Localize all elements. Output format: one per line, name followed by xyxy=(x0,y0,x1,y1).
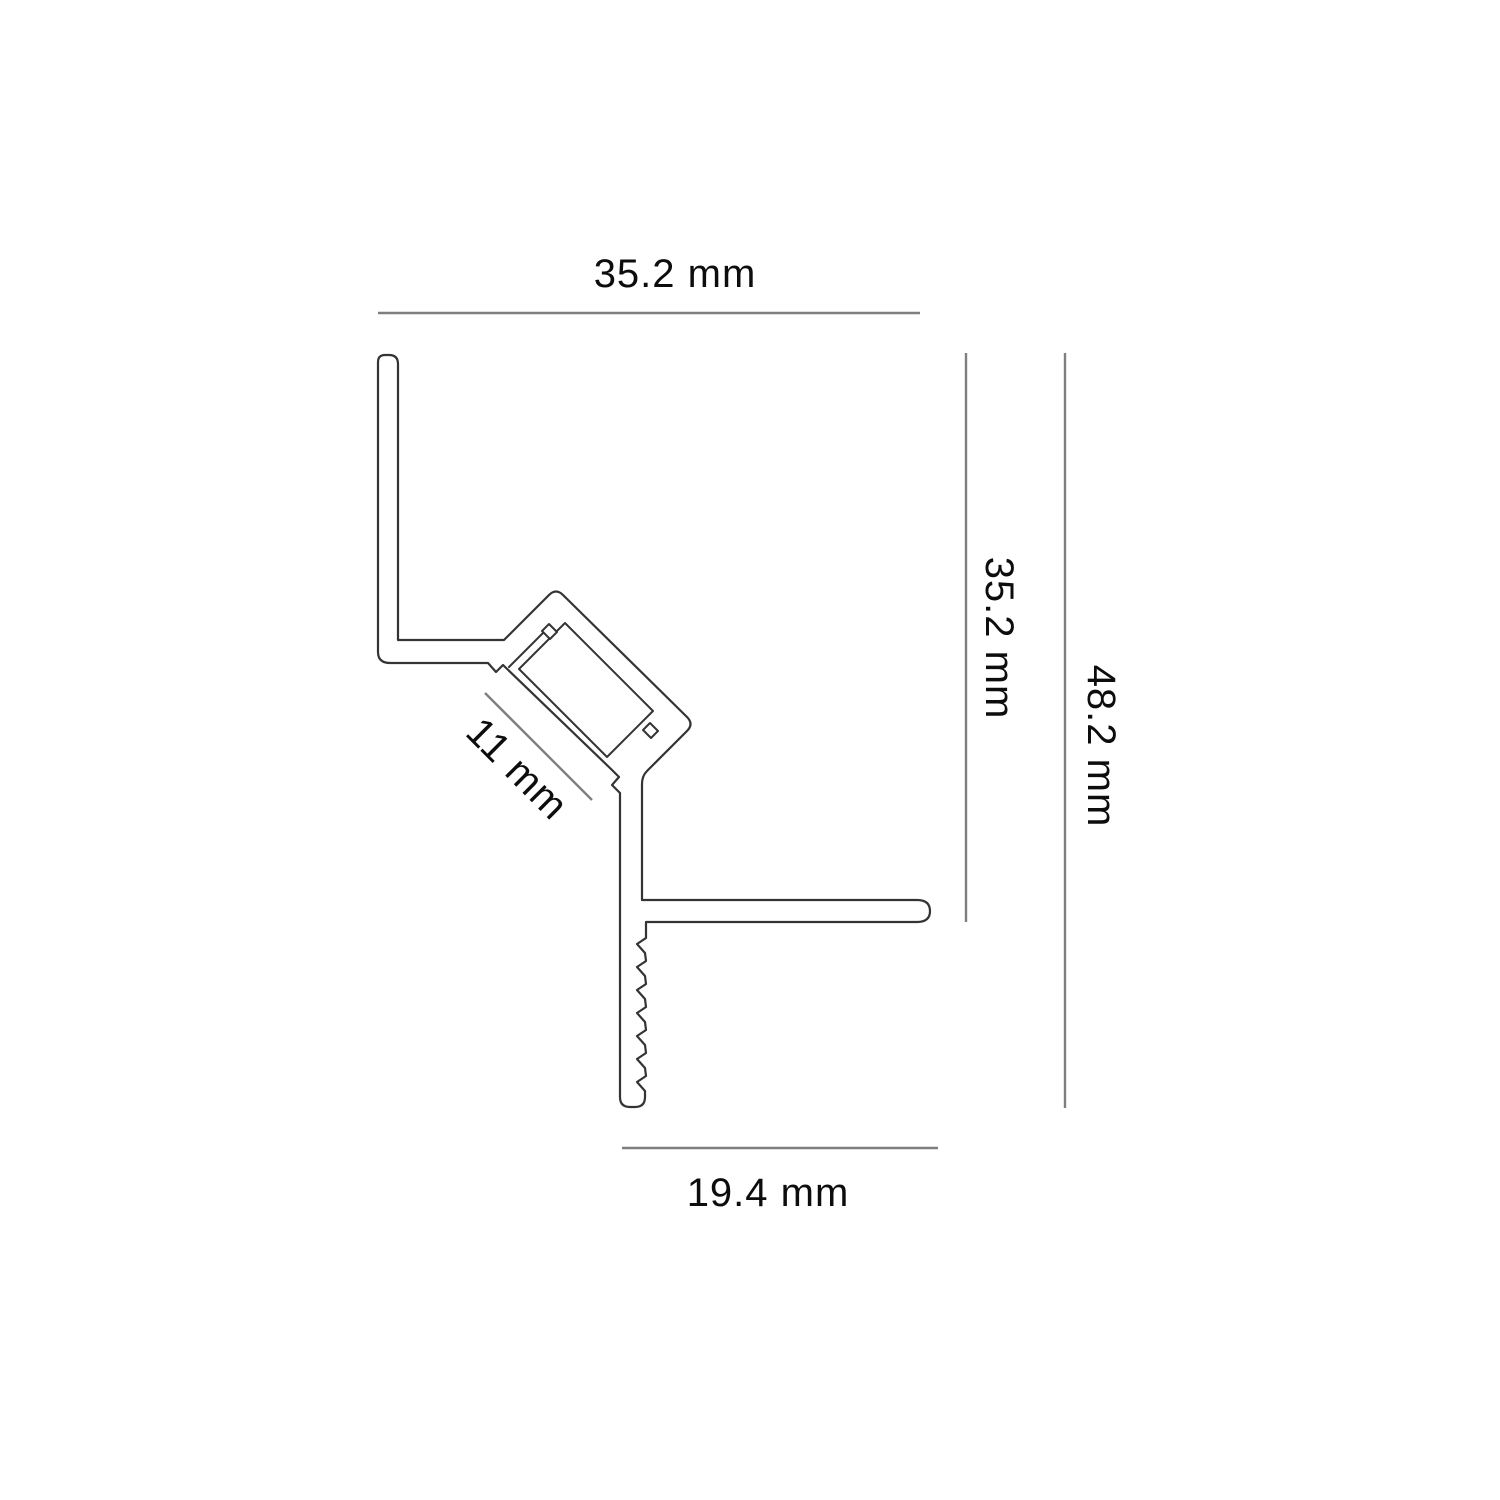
drawing-canvas: 35.2 mm 35.2 mm 48.2 mm 19.4 mm 11 mm xyxy=(0,0,1500,1500)
dimension-labels: 35.2 mm 35.2 mm 48.2 mm 19.4 mm 11 mm xyxy=(458,252,1123,1215)
dim-top-label: 35.2 mm xyxy=(594,252,757,296)
dim-right-outer-label: 48.2 mm xyxy=(1079,665,1123,828)
profile-diagram: 35.2 mm 35.2 mm 48.2 mm 19.4 mm 11 mm xyxy=(0,0,1500,1500)
dim-channel-label: 11 mm xyxy=(458,710,577,829)
dim-bottom-label: 19.4 mm xyxy=(687,1171,850,1215)
dim-right-inner-label: 35.2 mm xyxy=(977,557,1021,720)
profile-cross-section xyxy=(378,355,930,1107)
